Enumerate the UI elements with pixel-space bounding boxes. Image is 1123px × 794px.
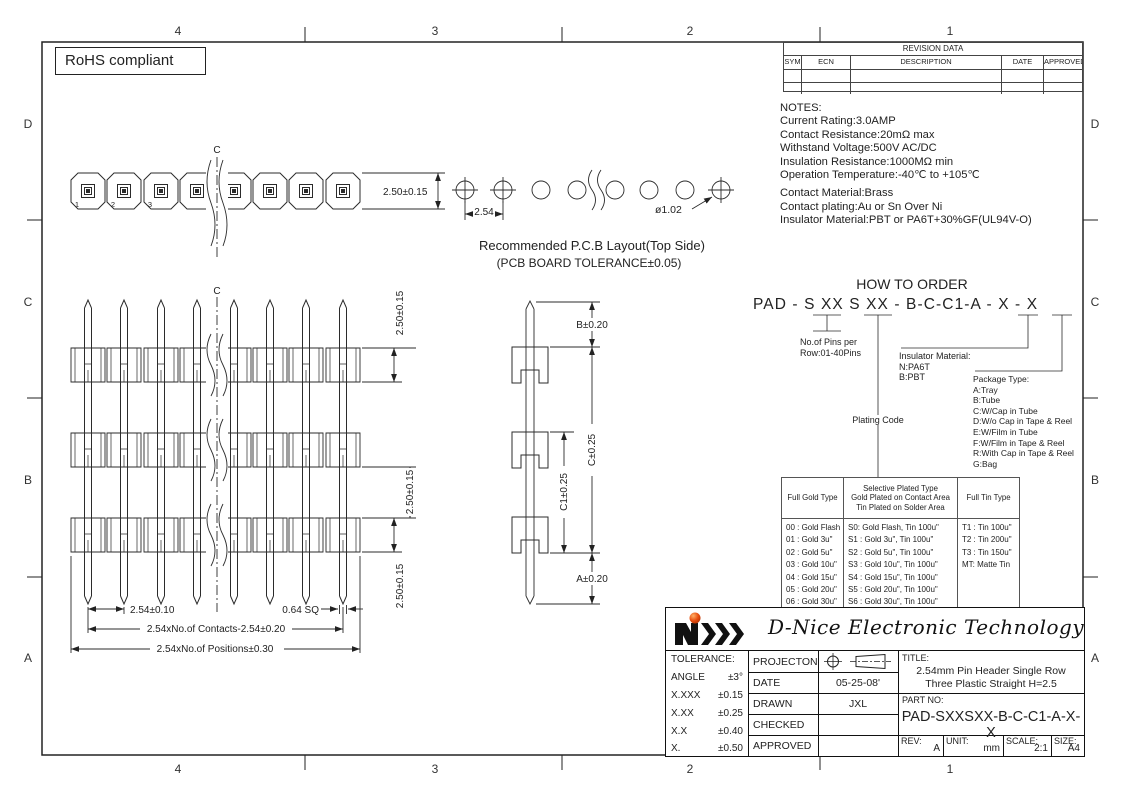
zone-col-top-1: 1 [940,24,960,38]
field-date-label: DATE [749,672,821,693]
pin-number-3: 3 [148,200,152,209]
tol-label: X. [671,743,680,754]
plating-header-gold: Full Gold Type [782,478,844,519]
zone-col-top-4: 4 [168,24,188,38]
plating-header-text: Full Gold Type [787,493,837,503]
company-name: D-Nice Electronic Technology [768,615,1084,639]
zone-col-bottom-2: 2 [680,762,700,776]
plating-header-text: Selective Plated Type [863,484,938,494]
pin-number-1: 1 [75,200,79,209]
scale-value: 2:1 [1034,743,1048,754]
field-approved-value [819,735,897,756]
plating-row: S2 : Gold 5u", Tin 100u" [848,547,957,559]
revision-cell [851,83,1002,94]
pcb-caption-2: (PCB BOARD TOLERANCE±0.05) [497,256,682,270]
revision-cell [851,70,1002,82]
field-drawn-label: DRAWN [749,693,821,714]
projection-symbol-cell [819,651,897,672]
revision-col-date: DATE [1002,56,1044,69]
rev-label: REV: [901,736,922,746]
package-type-line: A:Tray [973,385,1074,396]
side-dim-b: B±0.20 [576,320,608,331]
divider [898,693,1084,694]
revision-cell [784,83,802,94]
zone-row-left-a: A [18,651,38,665]
revision-empty-row [784,70,1082,83]
zone-row-right-d: D [1085,117,1105,131]
tol-value: ±0.15 [718,690,743,701]
tol-label: ANGLE [671,672,705,683]
top-view [71,157,445,258]
plating-row: 01 : Gold 3u" [786,534,843,546]
tolerance-heading: TOLERANCE: [666,651,748,669]
note-line: Current Rating:3.0AMP [780,115,1086,128]
tolerance-heading-text: TOLERANCE: [671,654,735,665]
note-line: Withstand Voltage:500V AC/DC [780,142,1086,155]
rev-cell: REV: A [898,735,943,756]
note-line: Insulation Resistance:1000MΩ min [780,156,1086,169]
plating-row: 00 : Gold Flash [786,522,843,534]
tol-value: ±0.25 [718,708,743,719]
field-checked-value [819,714,897,735]
plating-row: S5 : Gold 20u", Tin 100u" [848,584,957,596]
package-type-label: Package Type: A:Tray B:Tube C:W/Cap in T… [973,374,1074,469]
revision-cell [1002,70,1044,82]
insulator-material-label: Insulator Material: N:PA6T B:PBT [899,351,971,383]
tolerance-row: X.X±0.40 [666,722,748,740]
package-type-line: B:Tube [973,395,1074,406]
plating-row: S0: Gold Flash, Tin 100u" [848,522,957,534]
top-view-height-dim: 2.50±0.15 [383,187,428,198]
plating-header-text: Full Tin Type [966,493,1010,503]
revision-cell [802,70,851,82]
package-type-line: Package Type: [973,374,1074,385]
zone-row-left-b: B [18,473,38,487]
tolerance-row: X.±0.50 [666,740,748,758]
zone-row-right-c: C [1085,295,1105,309]
notes-heading: NOTES: [780,102,1086,115]
plating-row: S4 : Gold 15u", Tin 100u" [848,572,957,584]
front-dim-positions: 2.54xNo.of Positions±0.30 [157,644,274,655]
field-date-value: 05-25-08' [819,672,897,693]
plating-row: S1 : Gold 3u", Tin 100u" [848,534,957,546]
pins-per-row-line2: Row:01-40Pins [800,348,861,359]
revision-cell [784,70,802,82]
front-dim-h3: 2.50±0.15 [395,563,406,608]
drawing-title-line1: 2.54mm Pin Header Single Row [898,665,1084,678]
revision-col-sym: SYM [784,56,802,69]
tolerance-row: ANGLE±3° [666,669,748,687]
rohs-compliant-badge: RoHS compliant [55,47,206,75]
plating-header-tin: Full Tin Type [958,478,1019,519]
pcb-caption-1: Recommended P.C.B Layout(Top Side) [479,238,705,253]
plating-code-table: Full Gold Type Selective Plated Type Gol… [781,477,1020,610]
zone-col-bottom-4: 4 [168,762,188,776]
plating-header-text: Tin Plated on Solder Area [856,503,945,513]
field-projection-label: PROJECTON [749,651,821,672]
tolerance-row: X.XXX±0.15 [666,687,748,705]
size-value: A4 [1068,743,1080,754]
plating-code-label: Plating Code [838,415,918,425]
revision-col-approved: APPROVED [1044,56,1082,69]
package-type-line: F:W/Film in Tape & Reel [973,438,1074,449]
note-line: Contact plating:Au or Sn Over Ni [780,201,1086,214]
part-number-code-string: PAD - S XX S XX - B-C-C1-A - X - X [753,296,1038,314]
note-line: Operation Temperature:-40℃ to +105℃ [780,169,1086,182]
plating-tin-column: T1 : Tin 100u" T2 : Tin 200u" T3 : Tin 1… [958,519,1019,609]
insulator-material-line: B:PBT [899,372,971,383]
revision-cell [1002,83,1044,94]
plating-row: T3 : Tin 150u" [962,547,1019,559]
revision-empty-row [784,83,1082,94]
package-type-line: R:With Cap in Tape & Reel [973,448,1074,459]
tol-value: ±0.40 [718,726,743,737]
unit-label: UNIT: [946,736,969,746]
field-checked-label: CHECKED [749,714,821,735]
front-dim-pitch: 2.54±0.10 [130,605,175,616]
pins-per-row-line1: No.of Pins per [800,337,861,348]
tolerance-row: X.XX±0.25 [666,704,748,722]
plating-row: 02 : Gold 5u" [786,547,843,559]
unit-cell: UNIT: mm [943,735,1003,756]
insulator-material-line: Insulator Material: [899,351,971,362]
title-label: TITLE: [902,653,929,663]
front-dim-sq: 0.64 SQ [282,605,319,616]
zone-col-top-2: 2 [680,24,700,38]
side-dim-a: A±0.20 [576,574,608,585]
top-view-centerline-label: C [213,145,220,156]
revision-col-description: DESCRIPTION [851,56,1002,69]
zone-col-bottom-1: 1 [940,762,960,776]
logo-chevron [701,623,716,645]
plating-row: 03 : Gold 10u" [786,559,843,571]
drawing-title: 2.54mm Pin Header Single Row Three Plast… [898,665,1084,691]
zone-row-left-c: C [18,295,38,309]
side-dim-c: C±0.25 [587,433,598,466]
logo-chevron [729,623,744,645]
note-line: Contact Material:Brass [780,187,1086,200]
front-view [71,296,416,655]
revision-data-table: REVISION DATA SYM ECN DESCRIPTION DATE A… [783,42,1083,92]
plating-gold-column: 00 : Gold Flash 01 : Gold 3u" 02 : Gold … [782,519,844,609]
pins-per-row-label: No.of Pins per Row:01-40Pins [800,337,861,358]
revision-col-ecn: ECN [802,56,851,69]
tol-value: ±3° [728,672,743,683]
tol-label: X.X [671,726,687,737]
tol-value: ±0.50 [718,743,743,754]
logo-orange-dot [690,613,701,624]
zone-row-right-a: A [1085,651,1105,665]
revision-header-row: SYM ECN DESCRIPTION DATE APPROVED [784,56,1082,70]
insulator-material-line: N:PA6T [899,362,971,373]
title-block: D-Nice Electronic Technology TOLERANCE: … [665,607,1085,757]
plating-row: S3 : Gold 10u", Tin 100u" [848,559,957,571]
side-view [512,301,615,604]
tol-label: X.XXX [671,690,700,701]
revision-cell [1044,83,1082,94]
plating-header-text: Gold Plated on Contact Area [851,493,950,503]
zone-row-left-d: D [18,117,38,131]
field-drawn-value: JXL [819,693,897,714]
package-type-line: E:W/Film in Tube [973,427,1074,438]
plating-row: T1 : Tin 100u" [962,522,1019,534]
tolerance-column: TOLERANCE: ANGLE±3° X.XXX±0.15 X.XX±0.25… [666,651,748,758]
scale-cell: SCALE: 2:1 [1003,735,1051,756]
front-view-centerline-label: C [213,286,220,297]
revision-cell [1044,70,1082,82]
size-cell: SIZE: A4 [1051,735,1083,756]
front-dim-h2: 2.50±0.15 [405,469,416,514]
plating-row: MT: Matte Tin [962,559,1019,571]
zone-row-right-b: B [1085,473,1105,487]
company-banner: D-Nice Electronic Technology [666,608,1084,651]
rev-value: A [933,743,940,754]
logo-chevron [715,623,730,645]
notes-block: NOTES: Current Rating:3.0AMP Contact Res… [780,102,1086,228]
pcb-pitch-dim: 2.54 [474,207,494,218]
note-line: Contact Resistance:20mΩ max [780,129,1086,142]
pcb-layout-view [452,169,734,220]
note-line: Insulator Material:PBT or PA6T+30%GF(UL9… [780,214,1086,227]
package-type-line: D:W/o Cap in Tape & Reel [973,416,1074,427]
plating-row: T2 : Tin 200u" [962,534,1019,546]
zone-col-bottom-3: 3 [425,762,445,776]
unit-value: mm [983,743,1000,754]
plating-row: 05 : Gold 20u" [786,584,843,596]
front-dim-h1: 2.50±0.15 [395,290,406,335]
package-type-line: C:W/Cap in Tube [973,406,1074,417]
revision-table-title: REVISION DATA [784,43,1082,56]
package-type-line: G:Bag [973,459,1074,470]
how-to-order-heading: HOW TO ORDER [812,276,1012,292]
revision-cell [802,83,851,94]
plating-header-selective: Selective Plated Type Gold Plated on Con… [844,478,958,519]
side-dim-c1: C1±0.25 [559,473,570,511]
tol-label: X.XX [671,708,694,719]
engineering-drawing-sheet: { "zones": {"cols": ["4","3","2","1"], "… [0,0,1123,794]
pcb-hole-dim: ø1.02 [655,204,682,216]
zone-col-top-3: 3 [425,24,445,38]
pin-number-2: 2 [111,200,115,209]
logo-n-glyph [675,623,698,645]
field-approved-label: APPROVED [749,735,821,756]
company-logo [671,611,763,648]
projection-angle-icon [823,653,893,670]
front-dim-contacts: 2.54xNo.of Contacts-2.54±0.20 [147,624,286,635]
plating-selective-column: S0: Gold Flash, Tin 100u" S1 : Gold 3u",… [844,519,958,609]
part-no-label: PART NO: [902,695,944,705]
drawing-title-line2: Three Plastic Straight H=2.5 [898,678,1084,691]
plating-row: 04 : Gold 15u" [786,572,843,584]
